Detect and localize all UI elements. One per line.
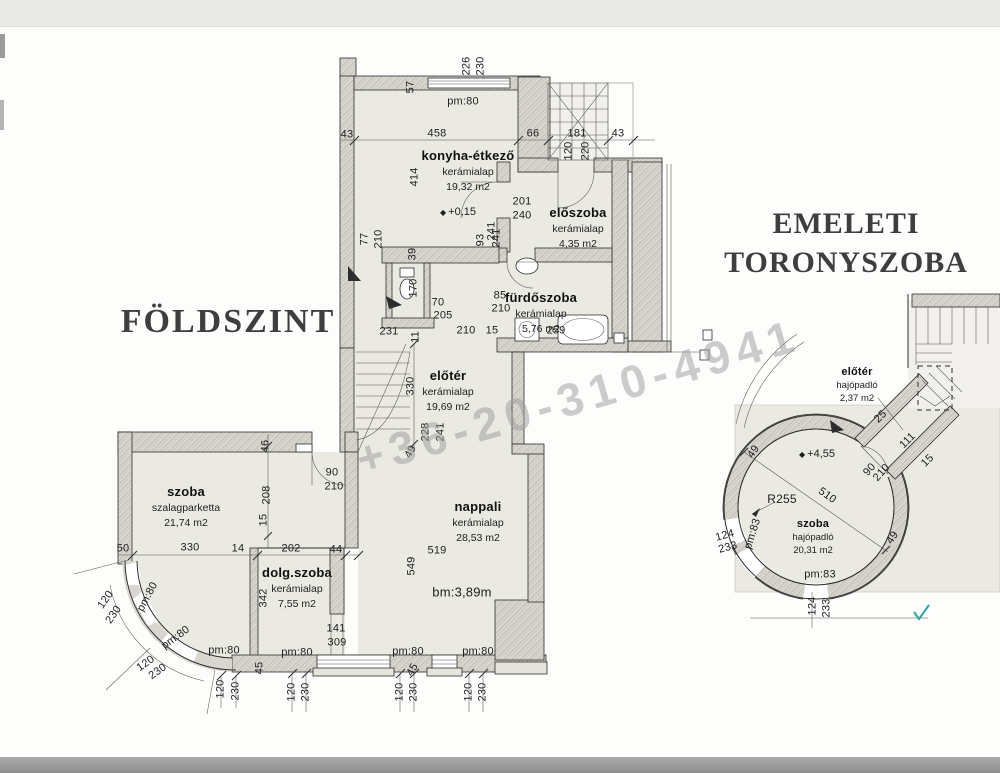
room-name: nappali bbox=[452, 499, 503, 514]
room-label: konyha-étkezőkerámialap19,32 m2 bbox=[422, 148, 515, 193]
room-floor: kerámialap bbox=[452, 517, 503, 529]
dimension-label: 181 bbox=[568, 129, 587, 140]
dimension-label: 57 bbox=[406, 81, 417, 94]
room-label: előtérhajópadló2,37 m2 bbox=[836, 366, 877, 404]
dimension-label: 230 bbox=[409, 683, 420, 702]
floorplan-canvas: 22623057pm:80434586618143120220414201240… bbox=[0, 0, 1000, 773]
dimension-label: 49 bbox=[885, 530, 901, 547]
dimension-label: 414 bbox=[410, 168, 421, 187]
dimension-label: 15 bbox=[259, 514, 270, 527]
room-area: 4,35 m2 bbox=[549, 238, 606, 250]
dimension-label: pm:80 bbox=[281, 648, 313, 659]
dimension-label: 120 bbox=[287, 683, 298, 702]
room-name: dolg.szoba bbox=[262, 565, 332, 580]
room-area: 7,55 m2 bbox=[262, 598, 332, 610]
tower-title-line2: TORONYSZOBA bbox=[724, 243, 968, 282]
dimension-label: 43 bbox=[341, 130, 354, 141]
room-name: szoba bbox=[152, 484, 220, 499]
dimension-label: 201 bbox=[513, 197, 532, 208]
dimension-label: R255 bbox=[767, 493, 797, 505]
dimension-label: 14 bbox=[232, 544, 245, 555]
dimension-label: 11 bbox=[411, 331, 422, 343]
dimension-label: 46 bbox=[261, 440, 272, 453]
dimension-label: pm:80 bbox=[160, 624, 192, 651]
dimension-label: 45 bbox=[405, 662, 421, 678]
dimension-label: 230 bbox=[231, 682, 242, 701]
dimension-label: pm:80 bbox=[462, 647, 494, 658]
room-floor: kerámialap bbox=[262, 583, 332, 595]
room-area: 19,32 m2 bbox=[422, 181, 515, 193]
dimension-label: 233 bbox=[717, 540, 738, 556]
ground-floor-title: FÖLDSZINT bbox=[121, 303, 336, 341]
room-floor: szalagparketta bbox=[152, 502, 220, 514]
dimension-label: 111 bbox=[898, 431, 918, 451]
room-floor: hajópadló bbox=[836, 380, 877, 391]
dimension-label: 230 bbox=[478, 683, 489, 702]
room-label: szobahajópadló20,31 m2 bbox=[792, 518, 833, 556]
room-floor: kerámialap bbox=[549, 223, 606, 235]
dimension-label: pm:80 bbox=[208, 646, 240, 657]
dimension-label: 519 bbox=[428, 546, 447, 557]
dimension-label: 330 bbox=[406, 377, 417, 396]
room-area: 5,76 m2 bbox=[505, 323, 577, 335]
dimension-label: 120 bbox=[564, 142, 575, 161]
dimension-label: 231 bbox=[380, 327, 399, 338]
dimension-label: 44 bbox=[330, 545, 343, 556]
dimension-label: 25 bbox=[873, 409, 890, 426]
level-marker-icon: ◆ bbox=[440, 208, 446, 217]
room-label: dolg.szobakerámialap7,55 m2 bbox=[262, 565, 332, 610]
room-area: 21,74 m2 bbox=[152, 517, 220, 529]
level-marker: ◆+0,15 bbox=[440, 206, 476, 218]
room-name: előszoba bbox=[549, 205, 606, 220]
dimension-label: bm:3,89m bbox=[432, 586, 491, 599]
dimension-label: 43 bbox=[612, 129, 625, 140]
room-label: szobaszalagparketta21,74 m2 bbox=[152, 484, 220, 529]
dimension-label: 458 bbox=[428, 129, 447, 140]
room-label: fürdőszobakerámialap5,76 m2 bbox=[505, 290, 577, 335]
dimension-label: 220 bbox=[581, 142, 592, 161]
dimension-label: 230 bbox=[301, 683, 312, 702]
labels-layer: 22623057pm:80434586618143120220414201240… bbox=[0, 0, 1000, 773]
level-value: +0,15 bbox=[448, 206, 476, 218]
dimension-label: 120 bbox=[216, 680, 227, 699]
dimension-label: 90 bbox=[326, 468, 339, 479]
dimension-label: 45 bbox=[255, 662, 266, 675]
level-marker: ◆+4,55 bbox=[799, 448, 835, 460]
room-floor: hajópadló bbox=[792, 532, 833, 543]
dimension-label: 208 bbox=[262, 486, 273, 505]
dimension-label: 15 bbox=[486, 326, 499, 337]
dimension-label: 549 bbox=[407, 557, 418, 576]
dimension-label: 120 bbox=[464, 683, 475, 702]
room-name: konyha-étkező bbox=[422, 148, 515, 163]
dimension-label: 93 bbox=[476, 234, 487, 247]
room-area: 28,53 m2 bbox=[452, 532, 503, 544]
room-label: nappalikerámialap28,53 m2 bbox=[452, 499, 503, 544]
room-name: fürdőszoba bbox=[505, 290, 577, 305]
tower-title-line1: EMELETI bbox=[724, 204, 968, 243]
room-area: 20,31 m2 bbox=[792, 545, 833, 556]
dimension-label: 77 bbox=[360, 233, 371, 246]
dimension-label: 202 bbox=[282, 544, 301, 555]
room-name: szoba bbox=[792, 518, 833, 530]
dimension-label: 210 bbox=[325, 482, 344, 493]
dimension-label: 205 bbox=[434, 311, 453, 322]
dimension-label: 120 bbox=[395, 683, 406, 702]
room-floor: kerámialap bbox=[422, 386, 473, 398]
dimension-label: 141 bbox=[327, 624, 346, 635]
dimension-label: 124 bbox=[808, 597, 819, 616]
dimension-label: pm:80 bbox=[447, 97, 479, 108]
dimension-label: 241 bbox=[492, 229, 503, 248]
dimension-label: 233 bbox=[822, 599, 833, 618]
dimension-label: 330 bbox=[181, 543, 200, 554]
dimension-label: 49 bbox=[746, 444, 762, 461]
dimension-label: 230 bbox=[476, 57, 487, 76]
room-label: előszobakerámialap4,35 m2 bbox=[549, 205, 606, 250]
dimension-label: 510 bbox=[816, 486, 838, 506]
room-area: 2,37 m2 bbox=[836, 393, 877, 404]
room-name: előtér bbox=[836, 366, 877, 378]
tower-floor-title: EMELETI TORONYSZOBA bbox=[724, 204, 968, 282]
dimension-label: pm:83 bbox=[743, 517, 763, 550]
room-name: előtér bbox=[422, 368, 473, 383]
level-marker-icon: ◆ bbox=[799, 450, 805, 459]
dimension-label: 240 bbox=[513, 211, 532, 222]
room-floor: kerámialap bbox=[505, 308, 577, 320]
dimension-label: 309 bbox=[328, 638, 347, 649]
dimension-label: 66 bbox=[527, 129, 540, 140]
dimension-label: pm:80 bbox=[392, 647, 424, 658]
dimension-label: 226 bbox=[462, 57, 473, 76]
dimension-label: 39 bbox=[408, 248, 419, 261]
dimension-label: 210 bbox=[457, 326, 476, 337]
dimension-label: 210 bbox=[374, 230, 385, 249]
dimension-label: 15 bbox=[920, 453, 937, 470]
room-floor: kerámialap bbox=[422, 166, 515, 178]
dimension-label: pm:83 bbox=[804, 570, 836, 581]
level-value: +4,55 bbox=[807, 448, 835, 460]
dimension-label: 70 bbox=[432, 298, 445, 309]
dimension-label: 170 bbox=[409, 279, 420, 298]
dimension-label: pm:80 bbox=[136, 580, 161, 613]
dimension-label: 50 bbox=[117, 544, 130, 555]
